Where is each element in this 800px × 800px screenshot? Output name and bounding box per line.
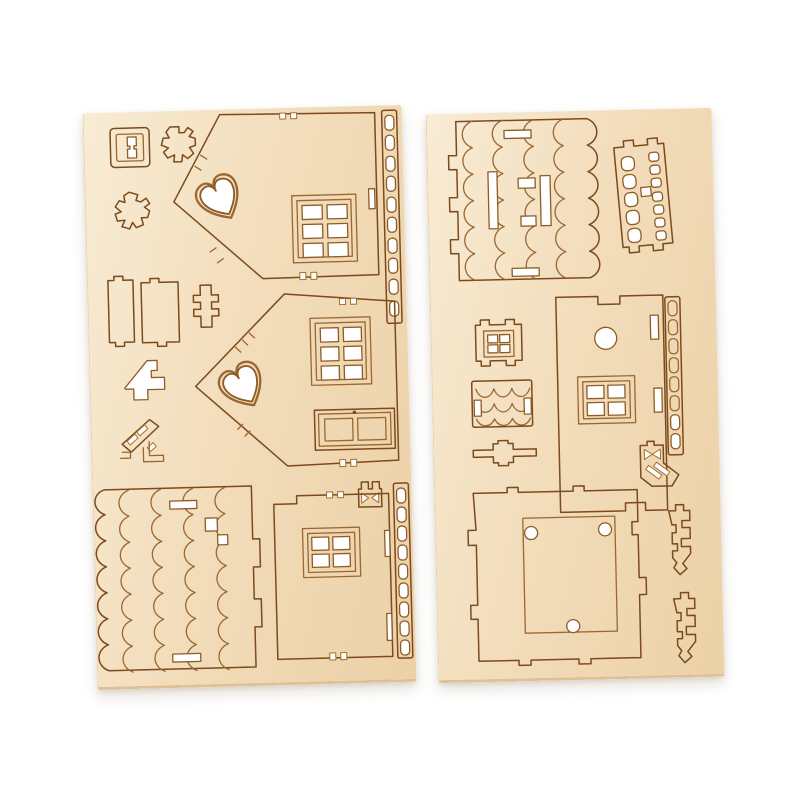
plywood-sheet-1 [83, 105, 417, 690]
sheet-2-cuts [427, 108, 725, 680]
piece-stair-rail [120, 419, 164, 462]
piece-shingle-roof-1 [95, 486, 263, 673]
piece-zigzag-b [674, 592, 697, 662]
product-photo [0, 0, 800, 800]
piece-gable-panel-2 [193, 291, 398, 470]
piece-ladder-strip-2 [393, 483, 413, 658]
piece-ladder-strip-right [665, 297, 684, 455]
plywood-sheet-2 [426, 108, 725, 683]
piece-chimney-scrap [124, 360, 165, 400]
sheet-1-cuts [84, 105, 417, 687]
piece-gable-panel-1 [172, 111, 379, 283]
piece-square-window-frame [110, 128, 150, 168]
piece-connector-block-1 [108, 276, 135, 347]
piece-plus-connector [193, 285, 219, 328]
piece-stair-railing [613, 137, 673, 253]
piece-crossbar [473, 440, 537, 466]
piece-small-window [475, 319, 522, 366]
piece-snowflake-b [110, 190, 153, 233]
piece-scallop-trim [472, 380, 533, 427]
piece-snowflake-a [161, 126, 196, 162]
piece-lower-wall [274, 490, 393, 661]
piece-shingle-roof-2 [448, 118, 600, 280]
piece-zigzag-a [669, 504, 692, 574]
piece-base-plate [467, 484, 648, 666]
piece-double-door [314, 408, 395, 450]
piece-ladder-strip-1 [382, 110, 403, 323]
piece-connector-block-2 [141, 278, 180, 347]
piece-wall-round-hole [556, 295, 668, 512]
